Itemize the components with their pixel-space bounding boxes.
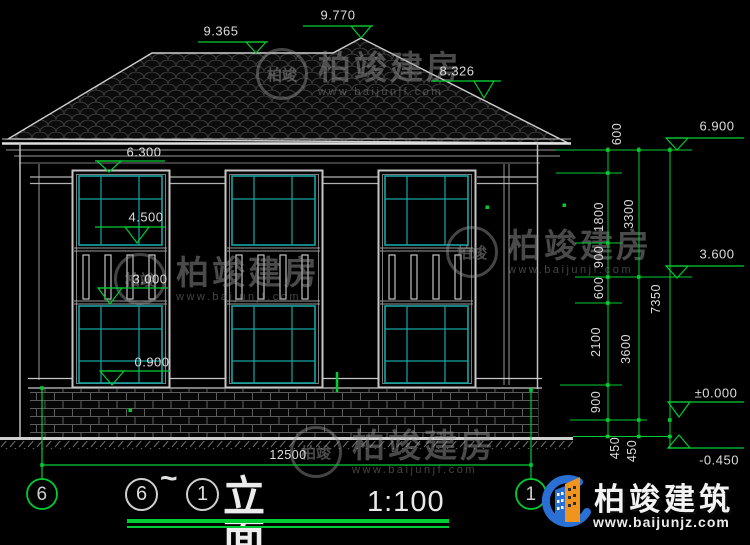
title-separator: ~ xyxy=(160,462,178,496)
brand-logo-name: 柏竣建筑 xyxy=(594,484,734,515)
dim-chain-450a: 450 xyxy=(608,437,622,459)
dimension-ticks xyxy=(40,148,671,467)
dimension-chain-lines xyxy=(556,147,692,448)
dim-chain-900a: 900 xyxy=(592,246,606,268)
level-second-window-sill: 4.500 xyxy=(128,210,163,225)
level-eave: 6.900 xyxy=(699,119,734,134)
title-axis-from-bubble: 6 xyxy=(125,478,158,511)
title-underline-thin xyxy=(127,526,449,528)
level-first-window-sill: 0.900 xyxy=(134,355,169,370)
dim-chain-7350: 7350 xyxy=(649,284,663,314)
elevation-marker-symbols xyxy=(95,26,744,448)
dim-chain-900b: 900 xyxy=(589,391,603,413)
stray-dot xyxy=(129,409,133,413)
title-axis-to-bubble: 1 xyxy=(186,478,219,511)
dim-chain-600a: 600 xyxy=(610,123,624,145)
dim-chain-3600: 3600 xyxy=(619,334,633,364)
title-name: 立面图 xyxy=(223,476,268,545)
level-roof-slope: 8.326 xyxy=(439,64,474,79)
stray-dot xyxy=(486,206,490,210)
level-grade: -0.450 xyxy=(699,453,739,468)
dim-chain-1800: 1800 xyxy=(592,202,606,232)
dim-chain-2100: 2100 xyxy=(589,327,603,357)
axis-label-right: 1 xyxy=(525,484,536,506)
brand-logo-icon xyxy=(537,470,591,542)
dimension-linework xyxy=(0,0,750,545)
brand-logo-url: www.baijunjz.com xyxy=(593,515,730,529)
level-roof-lower-ridge: 9.365 xyxy=(203,24,238,39)
dim-chain-450b: 450 xyxy=(625,440,639,462)
cad-elevation-drawing: 柏竣 柏竣建房 www.baijunjf.com 柏竣 柏竣建房 www.bai… xyxy=(0,0,750,545)
level-second-window-head: 6.300 xyxy=(126,145,161,160)
title-scale: 1:100 xyxy=(367,488,445,517)
axis-and-width-dimension xyxy=(27,372,546,509)
title-underline-thick xyxy=(127,519,449,523)
dim-chain-600b: 600 xyxy=(592,277,606,299)
level-first-window-head: 3.000 xyxy=(132,272,167,287)
dim-total-width: 12500 xyxy=(269,448,306,462)
level-second-floor: 3.600 xyxy=(699,247,734,262)
level-roof-peak: 9.770 xyxy=(320,8,355,23)
axis-label-left: 6 xyxy=(36,484,47,506)
level-ground: ±0.000 xyxy=(695,386,738,401)
dim-chain-3300: 3300 xyxy=(622,199,636,229)
stray-dot xyxy=(563,204,567,208)
